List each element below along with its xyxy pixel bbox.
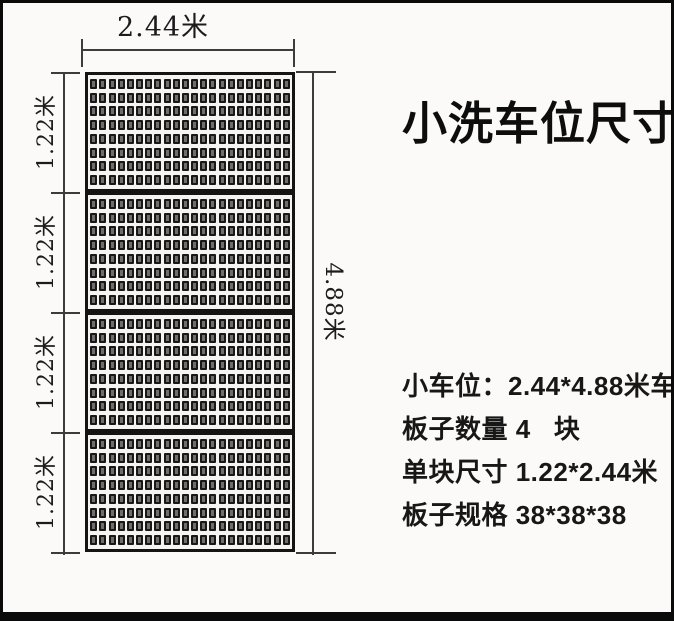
grating-cell <box>145 401 152 411</box>
grating-cell <box>219 199 226 209</box>
grating-cell <box>118 240 125 250</box>
grating-cell <box>237 453 244 463</box>
grating-cell <box>283 254 290 264</box>
grating-cell <box>145 535 152 545</box>
grating-cell <box>118 453 125 463</box>
grating-cell <box>200 295 207 305</box>
grating-cell <box>246 453 253 463</box>
grating-cell <box>255 333 262 343</box>
grating-cell <box>99 494 106 504</box>
grating-cell <box>136 388 143 398</box>
grating-cell <box>164 254 171 264</box>
grating-cell <box>127 360 134 370</box>
grating-cell <box>264 120 271 130</box>
grating-cell <box>246 480 253 490</box>
grating-cell <box>283 240 290 250</box>
grating-cell <box>145 415 152 425</box>
grating-cell <box>283 120 290 130</box>
grating-cell <box>209 415 216 425</box>
grating-cell <box>246 295 253 305</box>
grating-cell <box>255 161 262 171</box>
grating-cell <box>219 120 226 130</box>
grating-cell <box>255 93 262 103</box>
grating-cell <box>191 226 198 236</box>
grating-cell <box>283 333 290 343</box>
grating-cell <box>164 360 171 370</box>
grating-cell <box>200 226 207 236</box>
grating-cell <box>99 319 106 329</box>
grating-cell <box>154 494 161 504</box>
grating-cell <box>164 106 171 116</box>
grating-cell <box>274 295 281 305</box>
grating-cell <box>90 79 97 89</box>
grating-cell <box>127 148 134 158</box>
grating-cell <box>136 319 143 329</box>
grating-cell <box>182 120 189 130</box>
grating-cell <box>109 494 116 504</box>
grating-cell <box>154 148 161 158</box>
grating-cell <box>191 466 198 476</box>
grating-cell <box>90 439 97 449</box>
grating-cell <box>209 295 216 305</box>
grating-cell <box>191 521 198 531</box>
grating-cell <box>127 415 134 425</box>
grating-cell <box>255 295 262 305</box>
grating-cell <box>182 295 189 305</box>
grating-cell <box>145 480 152 490</box>
grating-cell <box>246 79 253 89</box>
grating-cell <box>255 268 262 278</box>
grating-cell <box>127 254 134 264</box>
grating-cell <box>200 148 207 158</box>
grating-cell <box>145 374 152 384</box>
grating-cell <box>90 508 97 518</box>
grating-cell <box>191 281 198 291</box>
grating-cell <box>228 508 235 518</box>
grating-cell <box>246 93 253 103</box>
grating-cell <box>219 494 226 504</box>
grating-cell <box>264 333 271 343</box>
grating-cell <box>145 134 152 144</box>
grating-cell <box>173 535 180 545</box>
grating-cell <box>90 374 97 384</box>
grating-cell <box>136 106 143 116</box>
grating-cell <box>173 240 180 250</box>
grating-cell <box>118 79 125 89</box>
grating-cell <box>164 148 171 158</box>
grating-cell <box>283 319 290 329</box>
grating-cell <box>145 319 152 329</box>
grating-cell <box>154 508 161 518</box>
grating-cell <box>109 254 116 264</box>
grating-cell <box>109 199 116 209</box>
grating-cell <box>145 439 152 449</box>
grating-cell <box>228 161 235 171</box>
grating-cell <box>136 333 143 343</box>
grating-cell <box>237 333 244 343</box>
grating-cell <box>136 120 143 130</box>
grating-cell <box>109 388 116 398</box>
grating-cell <box>283 453 290 463</box>
grating-cell <box>191 134 198 144</box>
grating-cell <box>237 466 244 476</box>
grating-cell <box>209 79 216 89</box>
grating-cell <box>283 213 290 223</box>
grating-cell <box>228 346 235 356</box>
grating-cell <box>219 480 226 490</box>
grating-cell <box>191 79 198 89</box>
grating-cell <box>127 480 134 490</box>
grating-cell <box>228 175 235 185</box>
grating-cell <box>145 281 152 291</box>
grating-cell <box>274 466 281 476</box>
grating-cell <box>228 374 235 384</box>
grating-cell <box>209 333 216 343</box>
grating-cell <box>145 508 152 518</box>
grating-cell <box>228 79 235 89</box>
grating-cell <box>274 93 281 103</box>
grating-cell <box>154 439 161 449</box>
grating-cell <box>164 508 171 518</box>
grating-cell <box>118 93 125 103</box>
grating-cell <box>99 199 106 209</box>
grating-cell <box>228 521 235 531</box>
grating-cell <box>182 521 189 531</box>
grating-cell <box>191 295 198 305</box>
grating-cell <box>154 120 161 130</box>
grating-cell <box>200 480 207 490</box>
grating-cell <box>99 120 106 130</box>
grating-cell <box>255 134 262 144</box>
grating-cell <box>274 120 281 130</box>
spec-line-panel-spec: 板子规格 38*38*38 <box>402 502 674 528</box>
grating-cell <box>228 148 235 158</box>
grating-cell <box>264 346 271 356</box>
grating-cell <box>90 226 97 236</box>
grating-cell <box>237 360 244 370</box>
grating-cell <box>264 521 271 531</box>
grating-cell <box>283 521 290 531</box>
grating-cell <box>274 161 281 171</box>
right-dimension-tick <box>296 71 336 73</box>
grating-cell <box>127 508 134 518</box>
grating-cell <box>237 346 244 356</box>
grating-cell <box>237 295 244 305</box>
grating-cell <box>127 346 134 356</box>
grating-cell <box>274 415 281 425</box>
grating-cell <box>246 281 253 291</box>
grating-cell <box>237 319 244 329</box>
grating-cell <box>191 319 198 329</box>
spec-line-car-position: 小车位：2.44*4.88米车位 <box>402 373 674 399</box>
grating-cell <box>255 535 262 545</box>
grating-cell <box>228 415 235 425</box>
grating-cell <box>255 226 262 236</box>
grating-cell <box>164 295 171 305</box>
grating-cell <box>118 333 125 343</box>
grating-cell <box>164 535 171 545</box>
grating-cell <box>164 226 171 236</box>
grating-cell <box>283 480 290 490</box>
grating-cell <box>99 480 106 490</box>
grating-cell <box>255 374 262 384</box>
grating-cell <box>173 226 180 236</box>
grating-cell <box>200 388 207 398</box>
grating-cell <box>99 388 106 398</box>
grating-cell <box>237 439 244 449</box>
grating-cell <box>109 535 116 545</box>
grating-cell <box>237 199 244 209</box>
grating-cell <box>99 439 106 449</box>
grating-cell <box>264 199 271 209</box>
grating-cell <box>209 134 216 144</box>
grating-cell <box>109 213 116 223</box>
grating-cell <box>237 415 244 425</box>
grating-cell <box>109 134 116 144</box>
grating-cell <box>136 268 143 278</box>
grating-cell <box>255 360 262 370</box>
grating-cell <box>145 360 152 370</box>
grating-cell <box>136 374 143 384</box>
grating-cell <box>145 346 152 356</box>
grating-cell <box>136 453 143 463</box>
grating-cell <box>228 93 235 103</box>
grating-cell <box>219 93 226 103</box>
grating-cell <box>173 281 180 291</box>
grating-cell <box>118 535 125 545</box>
grating-cell <box>274 521 281 531</box>
grating-cell <box>127 521 134 531</box>
grating-cell <box>246 494 253 504</box>
grating-cell <box>237 374 244 384</box>
grating-cell <box>200 466 207 476</box>
grating-cell <box>173 521 180 531</box>
grating-cell <box>237 254 244 264</box>
grating-cell <box>274 213 281 223</box>
grating-cell <box>200 333 207 343</box>
grating-cell <box>164 199 171 209</box>
grating-cell <box>219 79 226 89</box>
grating-cell <box>164 453 171 463</box>
grating-cell <box>191 535 198 545</box>
grating-cell <box>228 401 235 411</box>
grating-cell <box>164 134 171 144</box>
grating-cell <box>219 134 226 144</box>
grating-cell <box>237 106 244 116</box>
grating-cell <box>283 226 290 236</box>
grating-cell <box>255 120 262 130</box>
grating-cell <box>246 226 253 236</box>
grating-cell <box>200 134 207 144</box>
grating-cell <box>255 175 262 185</box>
page-title: 小洗车位尺寸 <box>402 87 672 152</box>
grating-cell <box>283 508 290 518</box>
grating-cell <box>283 346 290 356</box>
grating-cell <box>200 319 207 329</box>
grating-cell <box>90 199 97 209</box>
grating-cell <box>246 521 253 531</box>
grating-cell <box>182 199 189 209</box>
grating-cell <box>274 508 281 518</box>
grating-cell <box>109 175 116 185</box>
grating-cell <box>90 401 97 411</box>
grating-cell <box>136 480 143 490</box>
grating-cell <box>136 199 143 209</box>
grating-cell <box>118 374 125 384</box>
grating-cell <box>191 175 198 185</box>
grating-cell <box>182 415 189 425</box>
grating-cell <box>283 134 290 144</box>
grating-cell <box>90 333 97 343</box>
grating-cell <box>173 93 180 103</box>
grating-cell <box>209 401 216 411</box>
grating-cell <box>127 268 134 278</box>
grating-cell <box>99 466 106 476</box>
grating-cell <box>127 134 134 144</box>
grating-cell <box>136 93 143 103</box>
grating-cell <box>154 346 161 356</box>
grating-cell <box>209 199 216 209</box>
grating-cell <box>246 439 253 449</box>
grating-cell <box>127 175 134 185</box>
grating-cell <box>99 134 106 144</box>
grating-cell <box>246 346 253 356</box>
grating-cell <box>264 134 271 144</box>
grating-cell <box>228 388 235 398</box>
grating-cell <box>154 466 161 476</box>
grating-cell <box>246 535 253 545</box>
grating-cell <box>173 319 180 329</box>
grating-cell <box>191 148 198 158</box>
grating-cell <box>145 453 152 463</box>
grating-cell <box>264 466 271 476</box>
grating-cell <box>219 213 226 223</box>
grating-cell <box>99 535 106 545</box>
grating-cell <box>182 535 189 545</box>
grating-cell <box>246 120 253 130</box>
grating-cell <box>90 346 97 356</box>
grating-cell <box>209 148 216 158</box>
grating-cell <box>127 106 134 116</box>
grating-cell <box>209 254 216 264</box>
grating-cell <box>118 134 125 144</box>
grating-cell <box>90 134 97 144</box>
grating-cell <box>127 281 134 291</box>
grating-cell <box>264 268 271 278</box>
grating-cell <box>90 120 97 130</box>
grating-cell <box>118 254 125 264</box>
grating-cell <box>219 268 226 278</box>
grating-cell <box>255 508 262 518</box>
grating-cell <box>173 508 180 518</box>
grating-cell <box>264 360 271 370</box>
grating-cell <box>136 415 143 425</box>
grating-cell <box>274 148 281 158</box>
grating-cell <box>173 346 180 356</box>
grating-cell <box>237 175 244 185</box>
grating-cell <box>237 79 244 89</box>
grating-cell <box>99 281 106 291</box>
grating-cell <box>191 161 198 171</box>
grating-cell <box>255 466 262 476</box>
grating-cell <box>246 388 253 398</box>
grating-cell <box>182 226 189 236</box>
spec-block: 小车位：2.44*4.88米车位 板子数量 4 块 单块尺寸 1.22*2.44… <box>402 373 674 545</box>
grating-cell <box>164 93 171 103</box>
grating-cell <box>154 295 161 305</box>
grating-cell <box>154 106 161 116</box>
grating-cell <box>99 401 106 411</box>
grating-cell <box>246 199 253 209</box>
grating-cell <box>182 93 189 103</box>
grating-cell <box>127 79 134 89</box>
grating-cell <box>255 494 262 504</box>
grating-cell <box>99 226 106 236</box>
grating-cell <box>99 254 106 264</box>
grating-cell <box>164 213 171 223</box>
grating-cell <box>99 175 106 185</box>
grating-cell <box>118 388 125 398</box>
grating-cell <box>90 494 97 504</box>
grating-cell <box>228 281 235 291</box>
grating-cell <box>264 401 271 411</box>
grating-cell <box>127 535 134 545</box>
grating-cell <box>182 134 189 144</box>
grating-cell <box>237 93 244 103</box>
grating-cell <box>209 175 216 185</box>
grating-cell <box>127 199 134 209</box>
grating-cell <box>145 494 152 504</box>
grating-cell <box>219 175 226 185</box>
grating-cell <box>154 213 161 223</box>
grating-cell <box>182 319 189 329</box>
grating-cell <box>90 415 97 425</box>
grating-cell <box>274 319 281 329</box>
grating-cell <box>283 161 290 171</box>
grating-cell <box>219 281 226 291</box>
grating-cell <box>191 120 198 130</box>
grating-cell <box>255 439 262 449</box>
grating-cell <box>182 466 189 476</box>
grating-cell <box>200 93 207 103</box>
grating-cell <box>283 281 290 291</box>
grating-cell <box>173 388 180 398</box>
grating-cell <box>182 346 189 356</box>
grating-cell <box>264 175 271 185</box>
grating-cell <box>182 388 189 398</box>
grating-panel <box>85 72 295 192</box>
grating-cell <box>109 453 116 463</box>
top-dimension-tick-right <box>293 39 295 67</box>
grating-cell <box>90 388 97 398</box>
grating-cell <box>200 79 207 89</box>
grating-cell <box>173 374 180 384</box>
grating-cell <box>255 415 262 425</box>
grating-cell <box>219 295 226 305</box>
grating-cell <box>209 466 216 476</box>
grating-cell <box>246 508 253 518</box>
grating-cell <box>200 439 207 449</box>
grating-cell <box>173 295 180 305</box>
grating-cell <box>200 161 207 171</box>
grating-cell <box>237 148 244 158</box>
grating-cell <box>109 401 116 411</box>
grating-cell <box>274 240 281 250</box>
grating-cell <box>136 175 143 185</box>
grating-cell <box>264 213 271 223</box>
grating-cell <box>164 333 171 343</box>
grating-cell <box>200 175 207 185</box>
